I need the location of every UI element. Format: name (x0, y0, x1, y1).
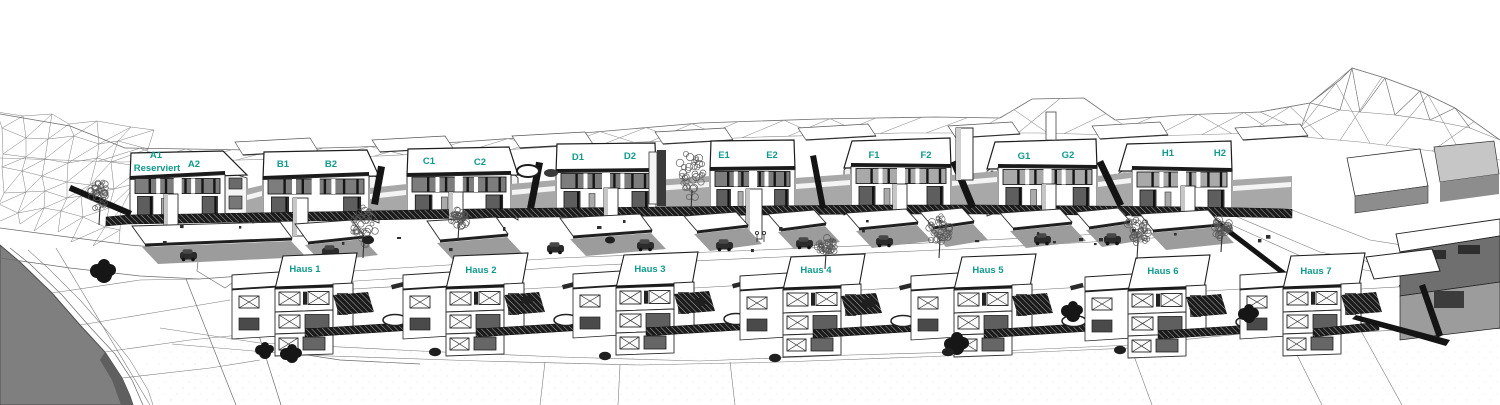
svg-text:D1: D1 (572, 152, 585, 163)
svg-text:A2: A2 (188, 159, 200, 170)
svg-text:Reserviert: Reserviert (134, 163, 181, 174)
svg-text:H1: H1 (1162, 148, 1175, 159)
svg-text:B2: B2 (325, 159, 337, 170)
svg-text:F2: F2 (920, 150, 931, 161)
svg-text:Haus 3: Haus 3 (634, 264, 665, 275)
svg-text:H2: H2 (1214, 148, 1226, 159)
svg-text:A1: A1 (150, 150, 163, 161)
svg-text:Haus 6: Haus 6 (1147, 266, 1178, 277)
svg-text:G1: G1 (1018, 151, 1031, 162)
svg-text:Haus 7: Haus 7 (1300, 266, 1331, 277)
svg-text:B1: B1 (277, 159, 290, 170)
svg-text:C1: C1 (423, 156, 436, 167)
svg-text:D2: D2 (624, 151, 636, 162)
svg-text:C2: C2 (474, 157, 486, 168)
svg-text:Haus 5: Haus 5 (972, 265, 1004, 276)
svg-text:Haus 4: Haus 4 (800, 265, 832, 276)
svg-text:F1: F1 (868, 150, 880, 161)
svg-text:Haus 1: Haus 1 (289, 264, 321, 275)
svg-text:Haus 2: Haus 2 (465, 265, 496, 276)
svg-text:E1: E1 (718, 150, 730, 161)
svg-text:G2: G2 (1062, 150, 1075, 161)
svg-text:E2: E2 (766, 150, 778, 161)
